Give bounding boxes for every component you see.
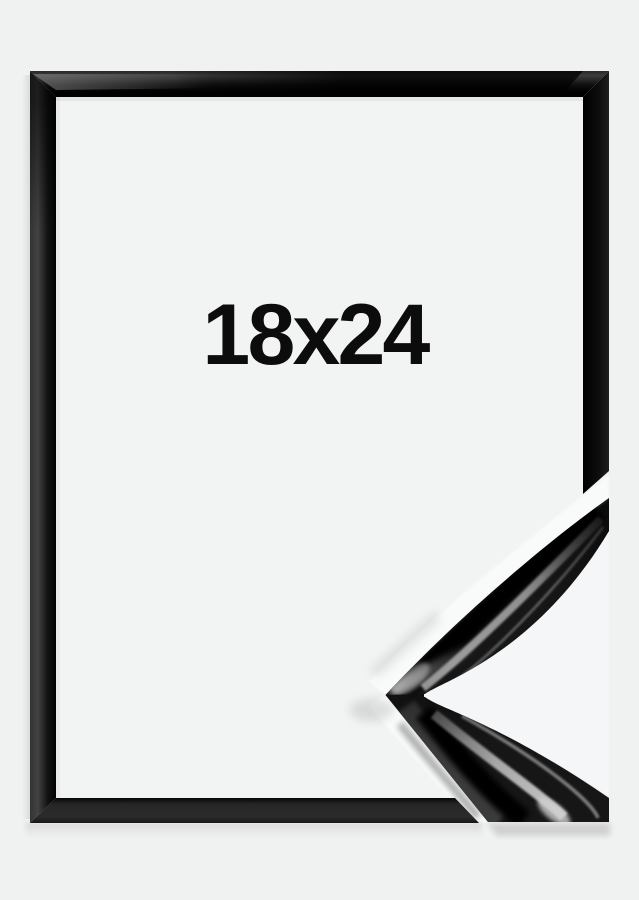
- svg-text:18x24: 18x24: [202, 287, 430, 383]
